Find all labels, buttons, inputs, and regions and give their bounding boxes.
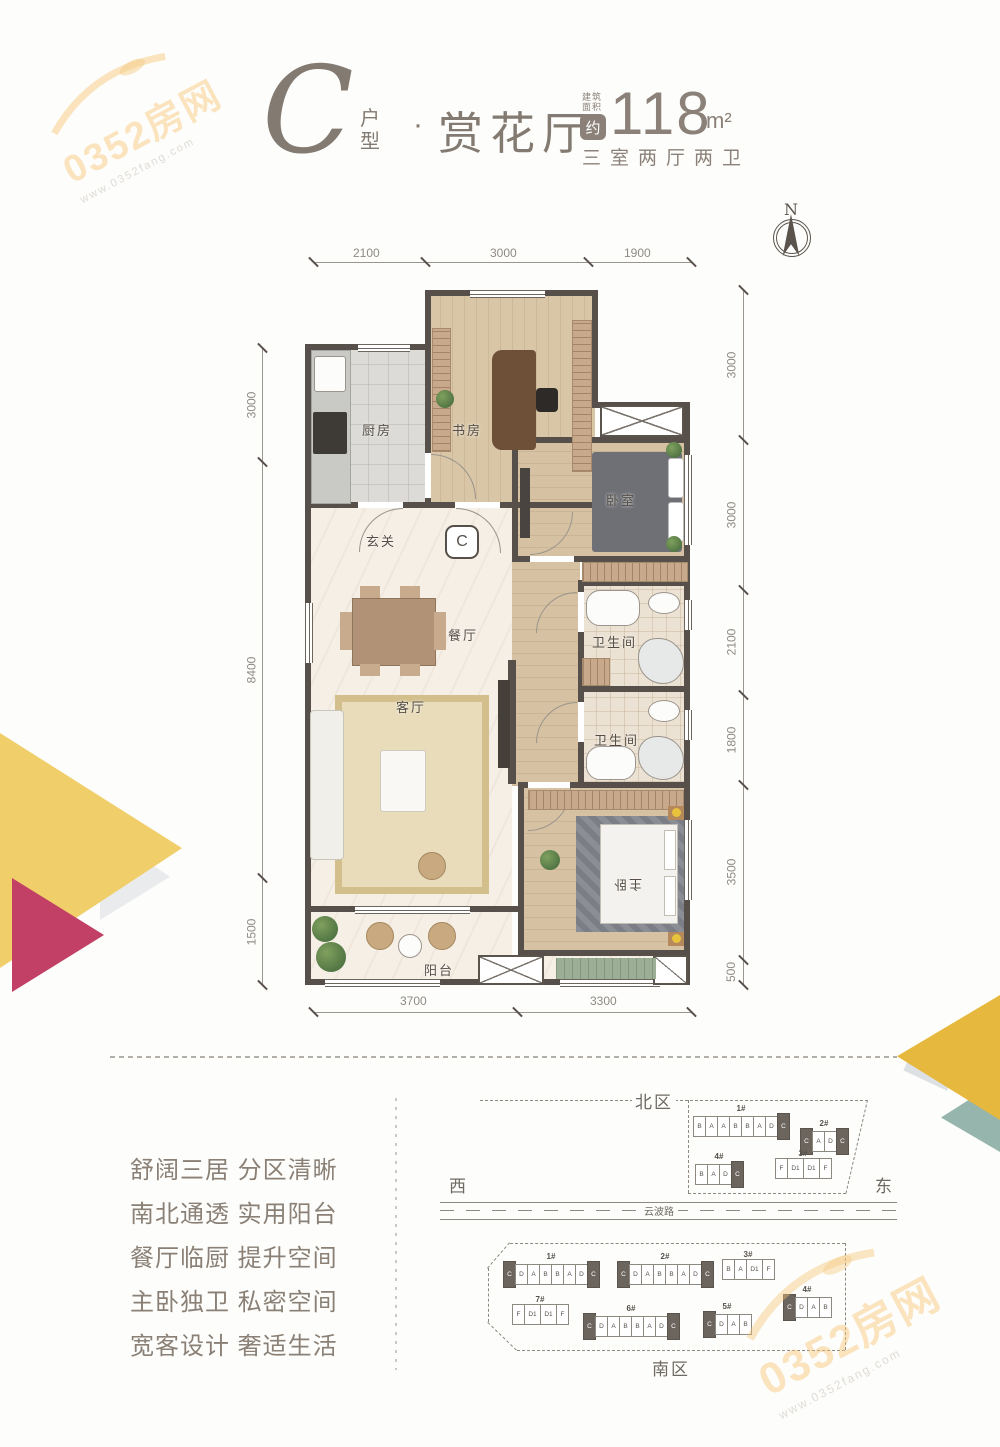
dim-line-right xyxy=(743,290,744,985)
area-unit: m² xyxy=(706,108,732,134)
building-units: CDAB xyxy=(703,1311,751,1338)
compass-icon xyxy=(773,219,811,257)
building-south-2#: 2#CDABBADC xyxy=(617,1252,713,1288)
window xyxy=(305,603,313,663)
window xyxy=(358,344,410,352)
unit-C-highlighted: C xyxy=(777,1113,790,1140)
dim-line-bottom xyxy=(313,1012,691,1013)
dim-line-left xyxy=(262,348,263,985)
study-desk xyxy=(492,350,536,450)
dim-right-4: 1800 xyxy=(724,727,738,754)
bed-pillow xyxy=(664,830,676,870)
study-chair xyxy=(536,388,558,412)
balcony-table xyxy=(398,934,422,958)
feature-line-3: 餐厅临厨 提升空间 xyxy=(130,1238,430,1273)
dining-chair xyxy=(360,586,380,598)
east-label: 东 xyxy=(872,1172,897,1197)
feature-line-2: 南北通透 实用阳台 xyxy=(130,1194,430,1229)
unit-C-highlighted: C xyxy=(587,1261,600,1288)
building-number: 5# xyxy=(703,1302,751,1311)
building-units: CDAB xyxy=(783,1294,831,1321)
building-number: 3# xyxy=(775,1149,831,1158)
wall xyxy=(512,437,518,562)
unit-D1: D1 xyxy=(787,1158,804,1179)
building-units: BADC xyxy=(695,1161,743,1188)
south-boundary-top xyxy=(510,1243,845,1244)
building-units: CDABBADC xyxy=(583,1313,679,1340)
tv-cabinet xyxy=(498,680,510,768)
dim-left-1: 3000 xyxy=(244,392,258,419)
unit-D1: D1 xyxy=(524,1304,541,1325)
building-number: 2# xyxy=(617,1252,713,1261)
building-units: BAABBADC xyxy=(693,1113,789,1140)
wall xyxy=(512,437,690,443)
balcony-chair xyxy=(428,922,456,950)
window xyxy=(325,979,440,987)
armchair xyxy=(418,852,446,880)
building-number: 2# xyxy=(800,1119,848,1128)
south-boundary-left xyxy=(488,1268,489,1322)
building-number: 4# xyxy=(695,1152,743,1161)
toilet xyxy=(648,700,680,722)
building-number: 3# xyxy=(722,1250,774,1259)
unit-marker: C xyxy=(445,525,479,559)
building-units: BAD1F xyxy=(722,1259,774,1280)
building-south-3#: 3#BAD1F xyxy=(722,1250,774,1280)
area-value: 118 xyxy=(610,84,712,144)
north-boundary-bottom xyxy=(688,1193,846,1194)
plan-name: 赏花厅 xyxy=(438,97,594,162)
bathtub xyxy=(586,746,636,780)
dining-chair xyxy=(360,664,380,676)
building-north-4#: 4#BADC xyxy=(695,1152,743,1188)
triangle-gold-right xyxy=(897,995,1000,1120)
window xyxy=(684,820,692,900)
page: 0352房网 www.0352fang.com C 户型 · 赏花厅 建筑 面积… xyxy=(0,0,1000,1447)
window xyxy=(684,710,692,740)
dim-left-3: 1500 xyxy=(244,919,258,946)
area-approx-badge: 约 xyxy=(580,114,606,140)
door-opening xyxy=(455,502,500,508)
door-opening xyxy=(530,556,574,562)
dining-chair xyxy=(340,612,352,650)
unit-type-label: 户型 xyxy=(360,108,382,154)
dining-chair xyxy=(400,586,420,598)
kitchen-sink xyxy=(314,356,346,392)
window xyxy=(470,290,545,298)
feature-line-1: 舒阔三居 分区清晰 xyxy=(130,1150,430,1185)
dim-left-2: 8400 xyxy=(244,657,258,684)
building-units: FD1D1F xyxy=(775,1158,831,1179)
south-boundary-bottom xyxy=(517,1350,845,1351)
area-caption: 建筑 面积 xyxy=(582,92,602,112)
watermark-brand: 0352房网 xyxy=(745,1259,950,1408)
feature-line-4: 主卧独卫 私密空间 xyxy=(130,1282,430,1317)
building-number: 1# xyxy=(693,1104,789,1113)
unit-type-letter: C xyxy=(262,52,354,172)
divider-dotted xyxy=(395,1098,397,1370)
kitchen-stove xyxy=(313,412,347,454)
dim-top-2: 3000 xyxy=(490,246,517,260)
bedroom-wardrobe xyxy=(582,562,688,582)
window xyxy=(684,455,692,545)
room-label-living: 客厅 xyxy=(396,697,426,716)
unit-D1: D1 xyxy=(540,1304,557,1325)
dim-right-5: 3500 xyxy=(724,859,738,886)
unit-F: F xyxy=(819,1158,832,1179)
wall xyxy=(592,290,598,408)
rooms-summary: 三室两厅两卫 xyxy=(582,142,750,170)
bed-pillow xyxy=(664,876,676,916)
dim-bottom-2: 3300 xyxy=(590,994,617,1008)
watermark-top-left: 0352房网 www.0352fang.com xyxy=(32,28,236,206)
window xyxy=(560,979,660,987)
separator-dashed xyxy=(110,1056,897,1058)
building-south-1#: 1#CDABBADC xyxy=(503,1252,599,1288)
bed-pillow xyxy=(668,458,684,498)
watermark-site: www.0352fang.com xyxy=(776,1317,957,1422)
room-label-bath1: 卫生间 xyxy=(592,632,637,651)
unit-D1: D1 xyxy=(746,1259,763,1280)
south-boundary-right xyxy=(845,1243,846,1350)
balcony-mat xyxy=(556,958,656,979)
building-units: FD1D1F xyxy=(512,1304,568,1325)
building-number: 6# xyxy=(583,1304,679,1313)
window xyxy=(684,600,692,630)
dim-top-3: 1900 xyxy=(624,246,651,260)
room-label-dining: 餐厅 xyxy=(448,625,478,644)
building-south-4#: 4#CDAB xyxy=(783,1285,831,1321)
building-north-1#: 1#BAABBADC xyxy=(693,1104,789,1140)
flue-shaft xyxy=(600,405,684,437)
room-label-master: 主卧 xyxy=(612,876,642,895)
unit-B: B xyxy=(739,1314,752,1335)
dim-bottom-1: 3700 xyxy=(400,994,427,1008)
compass-needle-icon xyxy=(778,214,804,256)
room-label-bedroom: 卧室 xyxy=(606,490,636,509)
building-south-5#: 5#CDAB xyxy=(703,1302,751,1338)
unit-B: B xyxy=(819,1297,832,1318)
watermark-swoosh-icon xyxy=(32,39,181,141)
dining-chair xyxy=(400,664,420,676)
floorplan: 厨房 书房 卧室 玄关 C 餐厅 客厅 卫生间 卫生间 主卧 阳台 xyxy=(240,240,770,1052)
lamp xyxy=(672,808,681,817)
dim-right-6: 500 xyxy=(724,962,738,982)
room-label-entry: 玄关 xyxy=(366,531,396,550)
building-north-3#: 3#FD1D1F xyxy=(775,1149,831,1179)
room-label-study: 书房 xyxy=(452,420,482,439)
flue-shaft xyxy=(478,955,544,985)
plant-icon xyxy=(540,850,560,870)
dim-right-1: 3000 xyxy=(724,352,738,379)
south-district-label: 南区 xyxy=(649,1355,693,1380)
building-south-6#: 6#CDABBADC xyxy=(583,1304,679,1340)
unit-C-highlighted: C xyxy=(667,1313,680,1340)
building-number: 7# xyxy=(512,1295,568,1304)
building-number: 4# xyxy=(783,1285,831,1294)
bedroom-tv-cabinet xyxy=(520,468,530,538)
door-opening xyxy=(578,702,584,742)
building-number: 1# xyxy=(503,1252,599,1261)
plant-icon xyxy=(436,390,454,408)
feature-line-5: 宽客设计 奢适生活 xyxy=(130,1326,430,1361)
dim-right-3: 2100 xyxy=(724,629,738,656)
unit-C-highlighted: C xyxy=(701,1261,714,1288)
dim-line-top xyxy=(313,262,691,263)
bathtub xyxy=(586,590,640,626)
road-line-bottom xyxy=(440,1219,897,1220)
plant-icon xyxy=(312,916,338,942)
road-name: 云波路 xyxy=(640,1203,678,1218)
north-boundary-left xyxy=(688,1100,689,1193)
watermark-brand: 0352房网 xyxy=(52,64,230,194)
area-caption-line2: 面积 xyxy=(582,102,602,112)
dining-table xyxy=(352,598,436,666)
room-label-bath2: 卫生间 xyxy=(594,730,639,749)
basin xyxy=(582,658,610,686)
living-sofa xyxy=(310,710,344,860)
window xyxy=(355,906,470,914)
lamp xyxy=(672,934,681,943)
study-bookshelf xyxy=(572,320,592,472)
area-caption-line1: 建筑 xyxy=(582,92,602,102)
north-district-label: 北区 xyxy=(632,1088,676,1113)
unit-F: F xyxy=(556,1304,569,1325)
corner-shaft xyxy=(653,955,688,985)
dining-chair xyxy=(434,612,446,650)
watermark-site: www.0352fang.com xyxy=(78,114,236,206)
building-units: CDABBADC xyxy=(617,1261,713,1288)
door-opening xyxy=(358,502,403,508)
balcony-chair xyxy=(366,922,394,950)
coffee-table xyxy=(380,750,426,812)
wall xyxy=(578,686,690,692)
room-label-balcony: 阳台 xyxy=(424,960,454,979)
west-label: 西 xyxy=(446,1172,471,1197)
plant-icon xyxy=(666,536,682,552)
building-south-7#: 7#FD1D1F xyxy=(512,1295,568,1325)
dim-top-1: 2100 xyxy=(353,246,380,260)
master-wardrobe xyxy=(528,790,684,810)
south-boundary-slant-bl xyxy=(487,1322,516,1351)
unit-D1: D1 xyxy=(803,1158,820,1179)
unit-C-highlighted: C xyxy=(731,1161,744,1188)
building-units: CDABBADC xyxy=(503,1261,599,1288)
wall xyxy=(425,290,431,350)
unit-C-highlighted: C xyxy=(836,1128,849,1155)
header-dot: · xyxy=(413,108,423,142)
plant-icon xyxy=(666,442,682,458)
plant-icon xyxy=(316,942,346,972)
room-label-kitchen: 厨房 xyxy=(362,420,392,439)
dim-right-2: 3000 xyxy=(724,502,738,529)
door-opening xyxy=(578,592,584,632)
toilet xyxy=(648,592,680,614)
unit-F: F xyxy=(762,1259,775,1280)
